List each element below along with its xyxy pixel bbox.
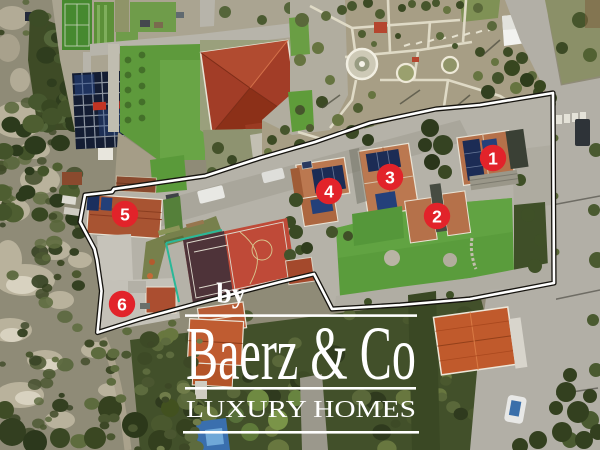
svg-text:4: 4	[324, 182, 334, 202]
svg-text:1: 1	[488, 149, 498, 169]
svg-text:6: 6	[117, 295, 127, 315]
svg-text:5: 5	[120, 205, 130, 225]
svg-text:Baerz & Co: Baerz & Co	[186, 312, 416, 396]
svg-text:3: 3	[385, 168, 395, 188]
svg-text:by: by	[216, 279, 246, 310]
svg-text:2: 2	[432, 207, 442, 227]
svg-text:LUXURY HOMES: LUXURY HOMES	[186, 396, 416, 423]
